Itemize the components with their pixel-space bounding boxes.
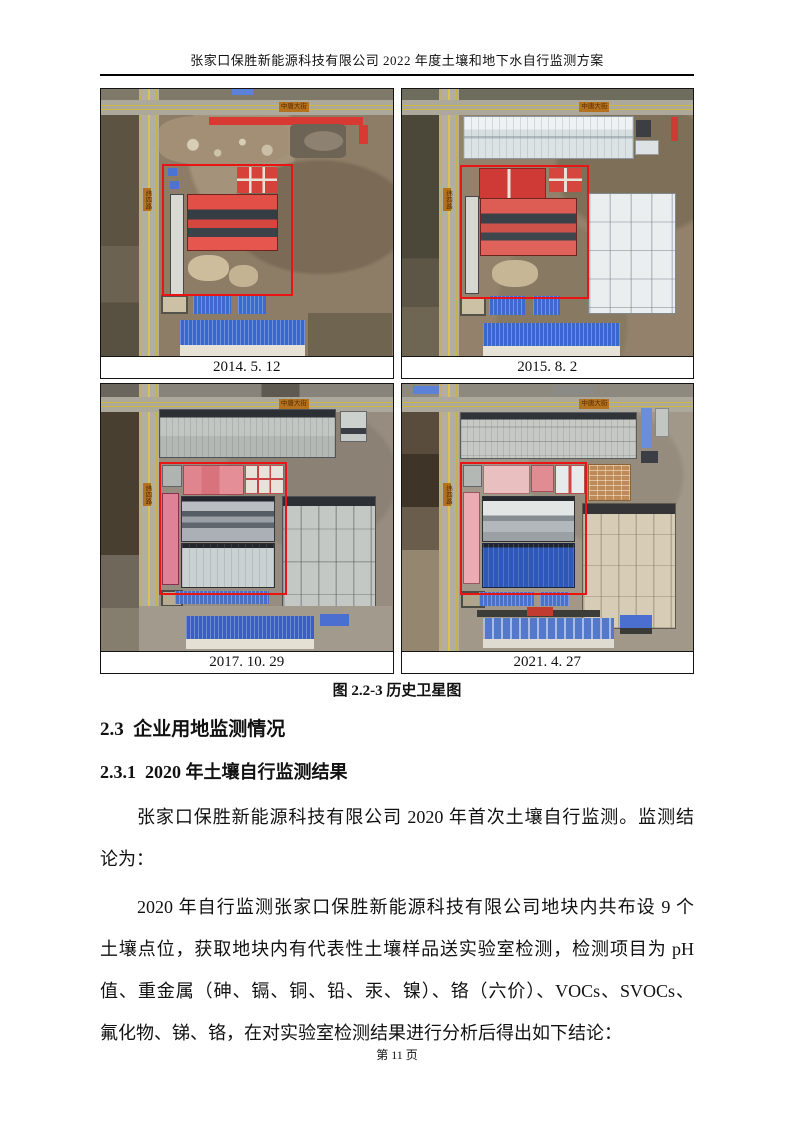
gray-roof-small bbox=[553, 385, 594, 394]
horizontal-road bbox=[101, 100, 393, 114]
dark-strip bbox=[620, 628, 652, 633]
road-label: 中唐大街 bbox=[579, 399, 609, 409]
road-label: 中唐大街 bbox=[279, 399, 309, 409]
white-apron bbox=[483, 346, 620, 356]
satellite-photo-2014: 中唐大街 纬四路 bbox=[100, 88, 394, 357]
blue-roof-small bbox=[413, 386, 439, 394]
blue-roof-building bbox=[193, 295, 231, 314]
tan-shed-area bbox=[588, 464, 631, 501]
figure-cell-2015: 中唐大街 纬四路 bbox=[401, 88, 695, 379]
building-cluster-topright bbox=[340, 411, 367, 442]
gray-warehouse-top bbox=[460, 412, 637, 459]
vertical-road bbox=[439, 89, 459, 356]
construction-site bbox=[290, 124, 345, 159]
blue-warehouse-bottom bbox=[483, 618, 614, 639]
road-label: 中唐大街 bbox=[579, 102, 609, 112]
red-building-small bbox=[527, 607, 553, 616]
beige-building bbox=[460, 297, 486, 316]
blue-roof-building bbox=[238, 295, 266, 314]
dark-field-left bbox=[402, 112, 440, 356]
body-text: 张家口保胜新能源科技有限公司 2020 年首次土壤自行监测。监测结 论为： 20… bbox=[100, 796, 694, 1054]
blue-roof-small bbox=[320, 614, 349, 626]
satellite-photo-2017: 中唐大街 纬四路 bbox=[100, 383, 394, 652]
red-building-small bbox=[671, 117, 677, 141]
gray-warehouse-top bbox=[159, 409, 336, 458]
paragraph-line: 2020 年自行监测张家口保胜新能源科技有限公司地块内共布设 9 个 bbox=[100, 886, 694, 928]
figure-cell-2017: 中唐大街 纬四路 bbox=[100, 383, 394, 674]
vertical-road bbox=[439, 384, 459, 651]
white-warehouse-right bbox=[588, 193, 676, 314]
photo-date-caption: 2021. 4. 27 bbox=[401, 651, 695, 674]
satellite-figure-grid: 中唐大街 纬四路 bbox=[100, 88, 694, 674]
dark-field-left bbox=[402, 411, 440, 651]
paragraph-line: 论为： bbox=[100, 838, 694, 880]
vertical-road bbox=[139, 89, 159, 356]
gray-building-small bbox=[655, 408, 669, 437]
white-warehouse-top bbox=[463, 116, 634, 159]
document-page: 张家口保胜新能源科技有限公司 2022 年度土壤和地下水自行监测方案 中唐大街 … bbox=[0, 0, 794, 1123]
road-label: 中唐大街 bbox=[279, 102, 309, 112]
road-label-vertical: 纬四路 bbox=[143, 188, 151, 212]
construction-debris bbox=[183, 134, 282, 161]
blue-roof-small bbox=[620, 615, 652, 628]
white-apron bbox=[180, 345, 305, 356]
brown-field-corner bbox=[308, 313, 393, 356]
figure-cell-2021: 中唐大街 纬四路 bbox=[401, 383, 695, 674]
blue-warehouse-bottom bbox=[180, 320, 305, 345]
site-boundary-outline bbox=[162, 164, 293, 296]
page-content: 张家口保胜新能源科技有限公司 2022 年度土壤和地下水自行监测方案 中唐大街 … bbox=[100, 0, 694, 1054]
section-heading-2-3-1: 2.3.1 2020 年土壤自行监测结果 bbox=[100, 758, 694, 784]
photo-date-caption: 2015. 8. 2 bbox=[401, 356, 695, 379]
site-boundary-outline bbox=[460, 462, 587, 595]
dark-building-small bbox=[636, 120, 651, 137]
site-boundary-outline bbox=[460, 165, 589, 300]
blue-roof-small bbox=[232, 89, 252, 95]
road-label-vertical: 纬四路 bbox=[443, 483, 451, 507]
paragraph-line: 土壤点位，获取地块内有代表性土壤样品送实验室检测，检测项目为 pH bbox=[100, 928, 694, 970]
dark-field-left bbox=[101, 411, 139, 651]
section-heading-2-3: 2.3 企业用地监测情况 bbox=[100, 714, 694, 741]
horizontal-road bbox=[402, 100, 694, 114]
road-label-vertical: 纬四路 bbox=[143, 483, 151, 507]
white-apron bbox=[483, 639, 614, 648]
paragraph-line: 值、重金属（砷、镉、铜、铅、汞、镍）、铬（六价）、VOCs、SVOCs、 bbox=[100, 970, 694, 1012]
figure-caption: 图 2.2-3 历史卫星图 bbox=[100, 679, 694, 700]
white-apron bbox=[186, 639, 314, 649]
dark-building-small bbox=[641, 451, 658, 463]
site-boundary-outline bbox=[159, 462, 286, 595]
satellite-photo-2015: 中唐大街 纬四路 bbox=[401, 88, 695, 357]
photo-date-caption: 2014. 5. 12 bbox=[100, 356, 394, 379]
page-header-title: 张家口保胜新能源科技有限公司 2022 年度土壤和地下水自行监测方案 bbox=[100, 50, 694, 69]
blue-warehouse-bottom bbox=[483, 323, 620, 347]
white-building-small bbox=[635, 140, 659, 155]
beige-building bbox=[161, 295, 189, 314]
photo-date-caption: 2017. 10. 29 bbox=[100, 651, 394, 674]
red-building-small bbox=[359, 125, 368, 144]
paragraph-line: 张家口保胜新能源科技有限公司 2020 年首次土壤自行监测。监测结 bbox=[100, 796, 694, 838]
road-label-vertical: 纬四路 bbox=[443, 188, 451, 212]
figure-cell-2014: 中唐大街 纬四路 bbox=[100, 88, 394, 379]
satellite-photo-2021: 中唐大街 纬四路 bbox=[401, 383, 695, 652]
dark-field-left bbox=[101, 112, 139, 356]
header-rule bbox=[100, 74, 694, 76]
page-number: 第 11 页 bbox=[0, 1046, 794, 1063]
blue-warehouse-bottom bbox=[186, 616, 314, 640]
blue-building-tall bbox=[641, 408, 653, 448]
